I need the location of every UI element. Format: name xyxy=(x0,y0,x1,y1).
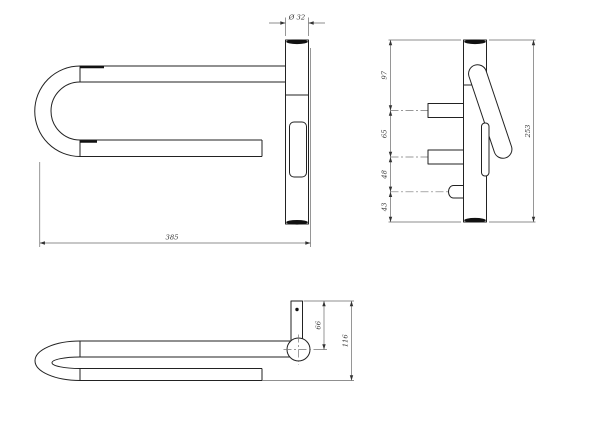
post-side-top-cap xyxy=(464,40,486,45)
post-slot xyxy=(290,122,307,177)
dim-arrow xyxy=(350,375,353,380)
dim-arrow xyxy=(389,217,392,222)
u-bend-inner-arc xyxy=(51,82,80,140)
chain-dim-label-2: 65 xyxy=(381,129,389,138)
post-side-slot xyxy=(482,123,490,176)
dim-arrow xyxy=(389,111,392,116)
dim-arrow xyxy=(532,217,535,222)
height-dim-label: 253 xyxy=(524,125,532,139)
diameter-dim-label: Ø 32 xyxy=(288,14,305,22)
front-view-dimensions: Ø 32 385 xyxy=(40,14,325,248)
dim-arrow xyxy=(389,187,392,192)
dim-arrow xyxy=(350,301,353,306)
plan-bend-outer-arc xyxy=(35,341,80,381)
offset-dim-label: 66 xyxy=(314,320,322,329)
u-bend-outer-arc xyxy=(35,66,80,157)
dim-arrow xyxy=(309,21,314,24)
post-bottom-cap xyxy=(286,220,308,225)
post-side-bottom-cap xyxy=(464,218,486,223)
plan-bend-inner-arc xyxy=(52,357,80,369)
drawing-canvas: Ø 32 385 xyxy=(0,0,600,424)
front-view xyxy=(35,40,309,225)
dim-arrow xyxy=(40,241,45,244)
dim-arrow xyxy=(389,105,392,110)
post-center-crosshair xyxy=(284,335,314,366)
side-view xyxy=(391,40,512,223)
chain-dim-label-4: 43 xyxy=(381,203,389,213)
wall-stub-middle xyxy=(428,150,464,164)
dim-arrow xyxy=(532,40,535,45)
dim-arrow xyxy=(322,301,325,306)
dim-arrow xyxy=(389,40,392,45)
dim-arrow xyxy=(280,21,285,24)
dim-arrow xyxy=(389,192,392,197)
dim-arrow xyxy=(322,344,325,349)
depth-dim-label: 116 xyxy=(342,334,350,348)
post-top-cap xyxy=(286,40,308,45)
bottom-view xyxy=(35,301,314,381)
wall-stub-upper xyxy=(428,104,464,118)
dim-arrow xyxy=(389,152,392,157)
wall-stub-lower xyxy=(449,186,464,199)
dim-arrow xyxy=(305,241,310,244)
dim-arrow xyxy=(389,157,392,162)
chain-dim-label-1: 97 xyxy=(381,70,389,79)
length-dim-label: 385 xyxy=(166,234,179,242)
bracket-hole xyxy=(295,308,298,311)
technical-drawing: Ø 32 385 xyxy=(0,0,600,424)
chain-dim-label-3: 48 xyxy=(381,169,389,179)
